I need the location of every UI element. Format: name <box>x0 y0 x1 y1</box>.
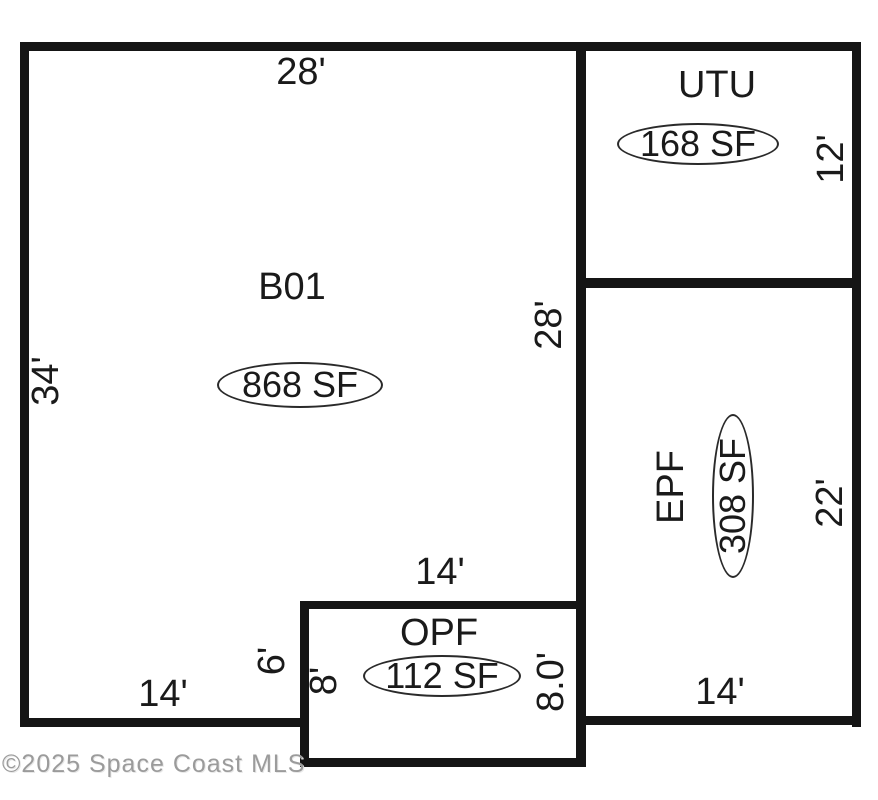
area-value-utu: 168 SF <box>640 126 756 162</box>
dimension-epf-right: 22' <box>811 478 849 528</box>
area-value-b01: 868 SF <box>242 367 358 403</box>
dimension-b01-top: 28' <box>276 53 326 91</box>
wall-opf-top <box>300 601 586 609</box>
wall-outer-right <box>852 42 861 727</box>
area-ellipse-epf: 308 SF <box>712 414 754 578</box>
room-label-epf: EPF <box>652 450 690 524</box>
wall-center-divider <box>576 42 586 767</box>
dimension-opf-outer-left: 6' <box>253 647 291 675</box>
dimension-b01-bottom: 14' <box>138 675 188 713</box>
dimension-opf-left: 8' <box>305 667 343 695</box>
wall-utu-bottom <box>576 278 861 288</box>
wall-outer-top <box>20 42 861 51</box>
area-ellipse-opf: 112 SF <box>363 655 521 697</box>
dimension-opf-right: 8.0' <box>532 652 570 712</box>
room-label-b01: B01 <box>258 268 326 306</box>
area-value-opf: 112 SF <box>385 658 498 694</box>
wall-opf-bottom <box>300 758 586 767</box>
dimension-b01-right: 28' <box>530 300 568 350</box>
wall-epf-bottom <box>576 716 861 725</box>
area-ellipse-b01: 868 SF <box>217 362 383 408</box>
floor-plan: 28' 34' 28' 14' B01 868 SF UTU 168 SF 12… <box>0 0 878 800</box>
room-label-utu: UTU <box>678 66 756 104</box>
copyright-watermark: ©2025 Space Coast MLS <box>2 750 305 779</box>
dimension-epf-bottom: 14' <box>695 673 745 711</box>
area-ellipse-utu: 168 SF <box>617 123 779 165</box>
dimension-opf-top: 14' <box>415 553 465 591</box>
room-label-opf: OPF <box>400 614 478 652</box>
dimension-utu-right: 12' <box>812 134 850 184</box>
dimension-b01-left: 34' <box>27 356 65 406</box>
wall-b01-bottom <box>20 718 309 727</box>
area-value-epf: 308 SF <box>715 438 751 554</box>
